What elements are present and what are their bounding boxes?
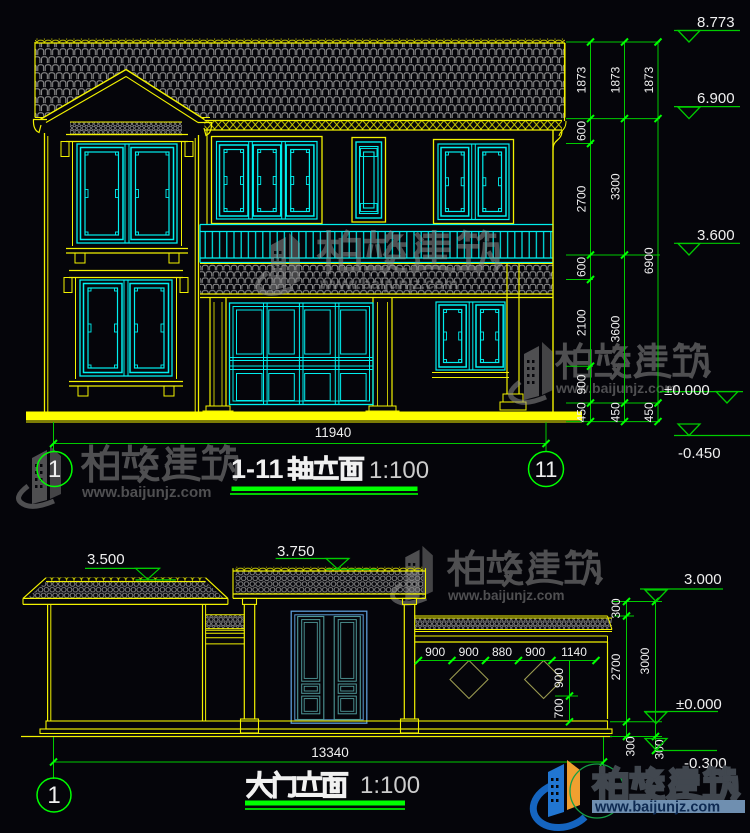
svg-text:900: 900: [425, 645, 445, 659]
svg-text:2700: 2700: [609, 653, 623, 680]
svg-text:3.600: 3.600: [697, 227, 735, 244]
svg-text:900: 900: [552, 668, 566, 688]
svg-text:11940: 11940: [315, 425, 352, 440]
svg-text:600: 600: [575, 257, 589, 277]
svg-text:900: 900: [575, 374, 589, 394]
svg-text:3000: 3000: [638, 647, 652, 674]
svg-text:3600: 3600: [609, 315, 623, 342]
svg-text:1:100: 1:100: [369, 457, 429, 484]
svg-text:6.900: 6.900: [697, 90, 735, 107]
svg-text:3300: 3300: [609, 173, 623, 200]
svg-text:1: 1: [47, 782, 60, 809]
svg-text:2700: 2700: [575, 185, 589, 212]
svg-text:450: 450: [642, 402, 656, 422]
svg-text:300: 300: [609, 598, 623, 618]
svg-text:±0.000: ±0.000: [676, 696, 722, 713]
svg-text:www.baijunjz.com: www.baijunjz.com: [81, 484, 211, 501]
svg-text:900: 900: [459, 645, 479, 659]
svg-text:2100: 2100: [575, 309, 589, 336]
svg-text:450: 450: [575, 402, 589, 422]
svg-text:3.000: 3.000: [684, 571, 722, 588]
svg-text:8.773: 8.773: [697, 14, 735, 31]
svg-text:11: 11: [535, 457, 558, 482]
svg-text:www.baijunjz.com: www.baijunjz.com: [594, 800, 720, 816]
svg-text:13340: 13340: [311, 745, 349, 760]
svg-text:www.baijunjz.com: www.baijunjz.com: [447, 588, 565, 603]
svg-text:450: 450: [609, 402, 623, 422]
svg-text:600: 600: [575, 121, 589, 141]
svg-text:1: 1: [48, 456, 61, 483]
svg-text:-0.450: -0.450: [678, 445, 721, 462]
svg-text:3.750: 3.750: [277, 543, 315, 560]
svg-text:6900: 6900: [642, 247, 656, 274]
svg-text:1:100: 1:100: [360, 772, 420, 799]
svg-text:900: 900: [525, 645, 545, 659]
svg-text:www.baijunjz.com: www.baijunjz.com: [555, 380, 677, 396]
svg-text:www.baijunjz.com: www.baijunjz.com: [319, 276, 458, 293]
svg-text:1140: 1140: [561, 645, 587, 659]
svg-text:1873: 1873: [575, 66, 589, 93]
svg-text:1873: 1873: [609, 66, 623, 93]
svg-text:3.500: 3.500: [87, 551, 125, 568]
svg-text:880: 880: [492, 645, 512, 659]
svg-text:700: 700: [552, 698, 566, 718]
svg-text:1-11: 1-11: [231, 454, 284, 484]
svg-text:300: 300: [624, 736, 638, 756]
svg-text:1873: 1873: [642, 66, 656, 93]
svg-text:±0.000: ±0.000: [664, 382, 710, 399]
